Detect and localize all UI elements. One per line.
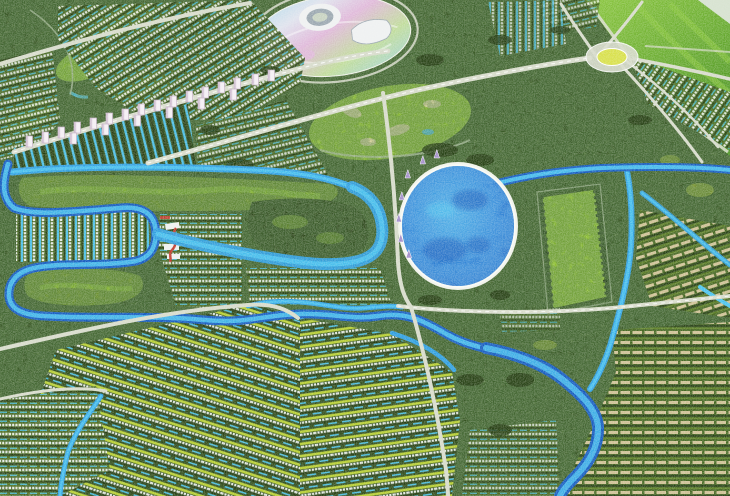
masterplan-scene: [0, 0, 730, 496]
model-speckle: [0, 0, 730, 496]
scale-model-photo: [0, 0, 730, 496]
